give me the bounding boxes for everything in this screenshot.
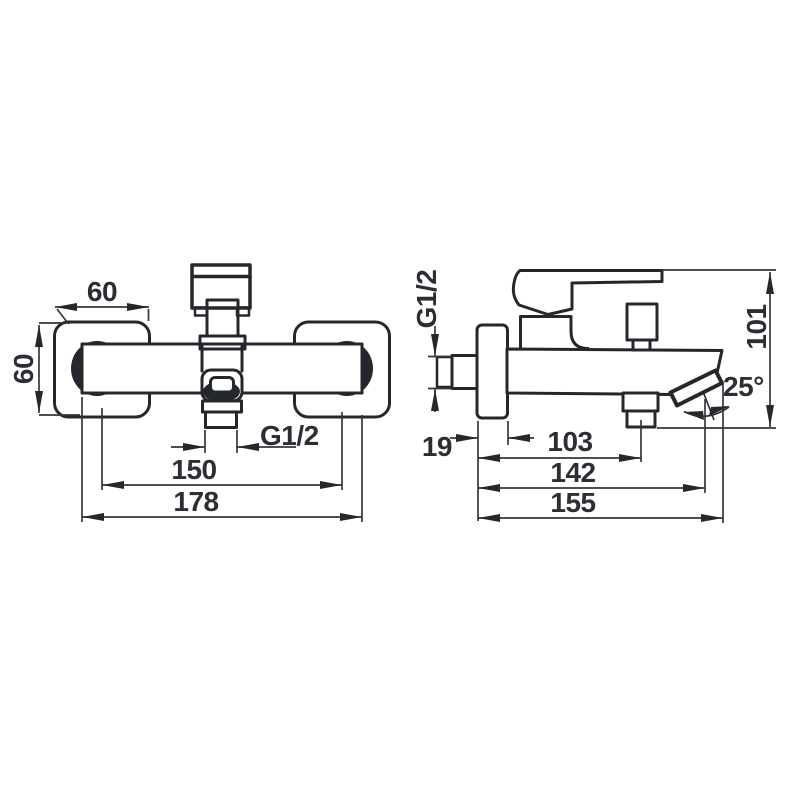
wall-nipple bbox=[437, 357, 452, 387]
dim-spout-length: 155 bbox=[478, 383, 723, 523]
dim-label-connection-centers: 150 bbox=[171, 454, 216, 485]
wall-flange bbox=[477, 325, 508, 418]
hose-outlet-side-upper bbox=[623, 393, 658, 411]
spout-top-detail bbox=[211, 378, 234, 393]
dim-flange-depth: 19 bbox=[422, 421, 534, 521]
dim-label-shower-outlet-thread: G1/2 bbox=[260, 420, 319, 451]
dim-label-overall-height: 101 bbox=[741, 304, 772, 349]
dim-label-flange-depth: 19 bbox=[422, 431, 452, 462]
hose-outlet-front-upper bbox=[203, 401, 242, 412]
bath-mixer-dimension-drawing: 60 60 G1/2 150 bbox=[0, 0, 800, 800]
dim-label-outlet-distance: 103 bbox=[547, 426, 592, 457]
cartridge-bonnet-side bbox=[521, 317, 589, 350]
dim-outlet-distance: 103 bbox=[478, 420, 641, 462]
diverter-knob-side bbox=[627, 304, 657, 340]
dim-label-spout-length: 155 bbox=[550, 487, 595, 518]
technical-drawing-page: 60 60 G1/2 150 bbox=[0, 0, 800, 800]
cartridge-bonnet-front bbox=[207, 300, 238, 336]
dim-shower-outlet-thread: G1/2 bbox=[171, 420, 319, 453]
diverter-knob-neck bbox=[633, 340, 650, 350]
dim-wall-thread: G1/2 bbox=[411, 270, 453, 412]
side-view: G1/2 19 103 142 bbox=[411, 270, 776, 523]
dim-plate-width: 60 bbox=[55, 276, 149, 322]
dim-label-wall-thread: G1/2 bbox=[411, 270, 442, 329]
dim-label-plate-height: 60 bbox=[8, 354, 39, 384]
dim-label-overall-width: 178 bbox=[173, 486, 218, 517]
lever-handle-front bbox=[192, 265, 250, 308]
dim-label-spout-angle: 25° bbox=[723, 371, 764, 402]
eccentric-connector bbox=[452, 356, 477, 389]
hose-outlet-front-lower bbox=[206, 412, 237, 428]
dim-label-plate-width: 60 bbox=[87, 276, 117, 307]
dim-label-aerator-distance: 142 bbox=[550, 457, 595, 488]
front-view: 60 60 G1/2 150 bbox=[8, 265, 390, 522]
